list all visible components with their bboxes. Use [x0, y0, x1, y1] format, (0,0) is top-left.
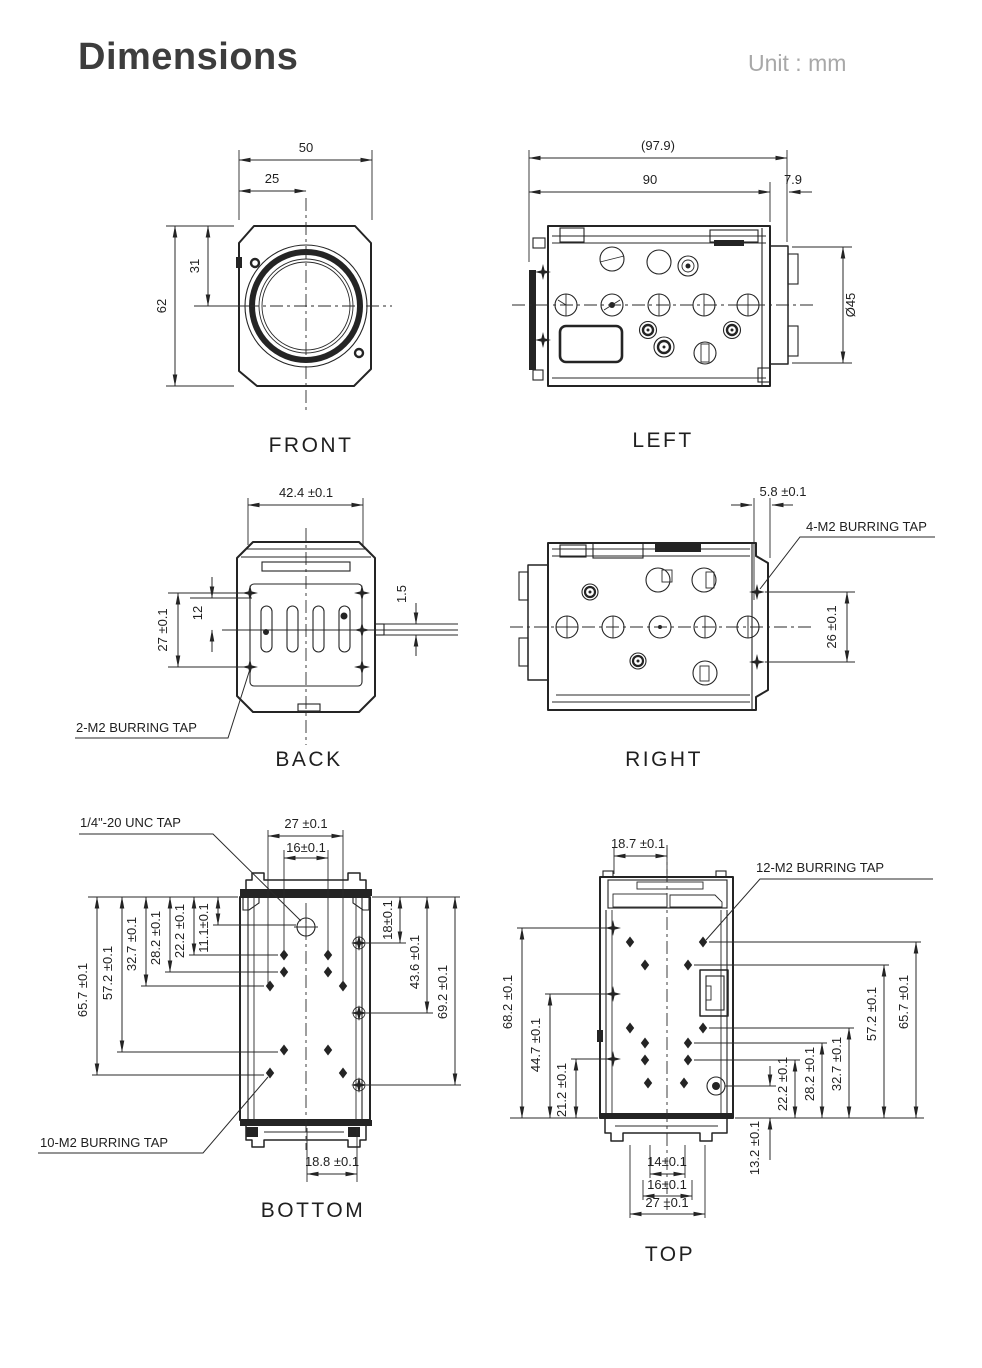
dim-front-width: 50	[299, 140, 313, 155]
vent-slot	[313, 606, 324, 652]
left-connector-slot	[560, 326, 622, 362]
dim-top-13-2: 13.2 ±0.1	[747, 1121, 762, 1175]
dim-back-slot-offset: 12	[190, 606, 205, 620]
right-view: 5.8 ±0.1 4-M2 BURRING TAP 26 ±0.1 RIGHT	[510, 484, 935, 771]
dim-top-14: 14±0.1	[647, 1154, 687, 1169]
front-side-notch	[236, 257, 242, 268]
left-view-label: LEFT	[632, 429, 693, 452]
bottom-view: 27 ±0.1 16±0.1 65.7 ±0.1 57.2 ±0.1 32.7 …	[38, 815, 461, 1222]
top-view-label: TOP	[645, 1243, 695, 1266]
dim-left-body: 90	[643, 172, 657, 187]
dim-top-18-7: 18.7 ±0.1	[611, 836, 665, 851]
dim-top-65-7: 65.7 ±0.1	[896, 975, 911, 1029]
dim-bottom-18: 18±0.1	[380, 900, 395, 940]
bottom-view-label: BOTTOM	[261, 1199, 365, 1222]
top-body-outline	[600, 877, 733, 1118]
dim-bottom-27: 27 ±0.1	[284, 816, 327, 831]
vent-slot	[261, 606, 272, 652]
dimension-drawing-svg: 50 25 62 31 FRONT	[0, 0, 982, 1368]
dim-bottom-32-7: 32.7 ±0.1	[124, 917, 139, 971]
dim-front-center-offset: 31	[187, 259, 202, 273]
dim-right-tap-spacing: 26 ±0.1	[824, 605, 839, 648]
dim-top-32-7: 32.7 ±0.1	[829, 1037, 844, 1091]
dim-top-21-2: 21.2 ±0.1	[554, 1063, 569, 1117]
dim-front-height: 62	[154, 299, 169, 313]
dim-top-44-7: 44.7 ±0.1	[528, 1018, 543, 1072]
front-view: 50 25 62 31 FRONT	[154, 140, 392, 457]
back-view-label: BACK	[275, 748, 342, 771]
dim-bottom-18-8: 18.8 ±0.1	[305, 1154, 359, 1169]
right-tap-note: 4-M2 BURRING TAP	[806, 519, 927, 534]
left-view: (97.9) 90 7.9 Ø45 LEFT	[512, 138, 858, 452]
dim-top-16: 16±0.1	[647, 1177, 687, 1192]
dim-left-lens-protrusion: 7.9	[784, 172, 802, 187]
lens-barrel	[528, 565, 548, 680]
dim-right-tap-offset: 5.8 ±0.1	[760, 484, 807, 499]
back-tap-note: 2-M2 BURRING TAP	[76, 720, 197, 735]
top-tap-leader	[706, 879, 933, 940]
top-view: 18.7 ±0.1 12-M2 BURRING TAP 68.2 ±0.1 44…	[500, 836, 933, 1266]
dim-bottom-69-2: 69.2 ±0.1	[435, 965, 450, 1019]
dim-bottom-22-2: 22.2 ±0.1	[172, 904, 187, 958]
dim-bottom-57-2: 57.2 ±0.1	[100, 946, 115, 1000]
dim-bottom-65-7: 65.7 ±0.1	[75, 963, 90, 1017]
dim-back-width: 42.4 ±0.1	[279, 485, 333, 500]
dim-back-tap-spacing: 27 ±0.1	[155, 608, 170, 651]
top-tap-note: 12-M2 BURRING TAP	[756, 860, 884, 875]
back-view: 42.4 ±0.1 12 27 ±0.1 1.5 2-M2 BURRING TA…	[75, 485, 458, 771]
unc-tap-note: 1/4"-20 UNC TAP	[80, 815, 181, 830]
dim-bottom-11-1: 11.1±0.1	[196, 903, 211, 953]
dim-bottom-43-6: 43.6 ±0.1	[407, 935, 422, 989]
front-screw-bottom-right	[355, 349, 363, 357]
right-tap-leader	[760, 537, 935, 589]
dimensions-page: Dimensions Unit : mm 50	[0, 0, 982, 1368]
dim-bottom-16: 16±0.1	[286, 840, 326, 855]
dim-front-half-width: 25	[265, 171, 279, 186]
right-view-label: RIGHT	[625, 748, 703, 771]
dim-bottom-28-2: 28.2 ±0.1	[148, 911, 163, 965]
left-back-plate	[529, 270, 536, 370]
dim-left-overall: (97.9)	[641, 138, 675, 153]
dim-back-protrusion: 1.5	[394, 585, 409, 603]
dim-top-28-2: 28.2 ±0.1	[802, 1047, 817, 1101]
vent-slot	[287, 606, 298, 652]
front-view-label: FRONT	[269, 434, 354, 457]
dim-top-68-2: 68.2 ±0.1	[500, 975, 515, 1029]
dim-top-57-2: 57.2 ±0.1	[864, 987, 879, 1041]
dim-top-27: 27 ±0.1	[645, 1195, 688, 1210]
bottom-tap-note: 10-M2 BURRING TAP	[40, 1135, 168, 1150]
front-screw-top-left	[251, 259, 259, 267]
dim-top-22-2: 22.2 ±0.1	[775, 1057, 790, 1111]
dim-lens-diameter: Ø45	[843, 293, 858, 318]
top-bottom-flange	[605, 1119, 727, 1141]
